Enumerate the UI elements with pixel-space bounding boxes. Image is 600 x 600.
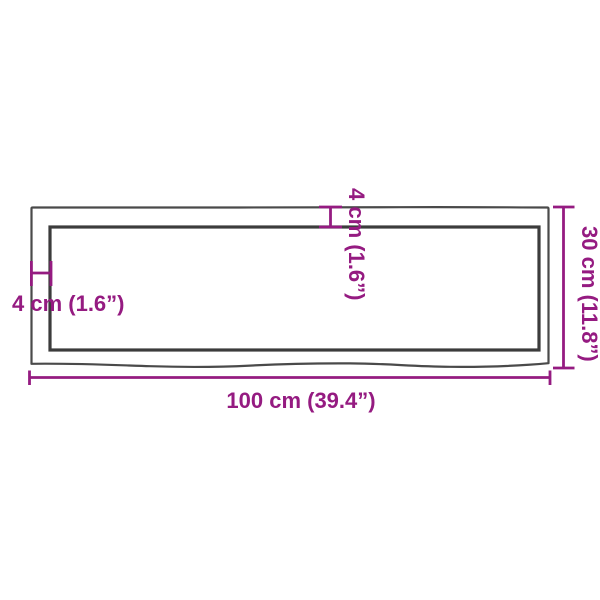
width-dimension-line [30, 371, 551, 386]
width-label: 100 cm (39.4”) [171, 389, 431, 412]
top-thickness-label: 4 cm (1.6”) [345, 188, 368, 301]
left-thickness-label: 4 cm (1.6”) [12, 292, 125, 315]
inner-panel-outline [50, 227, 539, 350]
dimension-diagram: 4 cm (1.6”) 4 cm (1.6”) 30 cm (11.8”) 10… [0, 0, 600, 600]
height-dimension-line [553, 207, 575, 368]
height-label: 30 cm (11.8”) [578, 226, 600, 362]
